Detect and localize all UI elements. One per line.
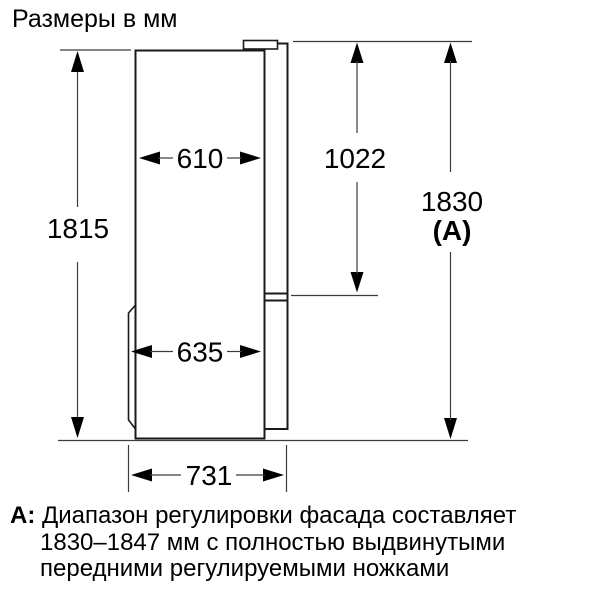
arrow-right-icon	[240, 345, 261, 358]
dim-total-depth: 731	[131, 460, 284, 491]
footnote: A: Диапазон регулировки фасада составляе…	[10, 503, 600, 583]
dim-label-635: 635	[177, 337, 224, 368]
dim-label-731: 731	[186, 460, 233, 491]
dimension-diagram-page: Размеры в мм 1815	[0, 0, 600, 600]
arrow-right-icon	[263, 469, 284, 482]
dim-label-610: 610	[177, 143, 224, 174]
footnote-line-1: Диапазон регулировки фасада составляет	[42, 503, 516, 529]
footnote-line-3: передними регулируемыми ножками	[40, 555, 449, 582]
dim-label-1815: 1815	[47, 213, 109, 244]
dim-cabinet-height: 1815	[47, 51, 109, 438]
footnote-line-2: 1830–1847 мм с полностью выдвинутыми	[40, 529, 505, 556]
arrow-up-icon	[351, 43, 364, 64]
dim-lower-depth: 635	[131, 337, 261, 368]
dim-cabinet-depth: 610	[139, 143, 261, 174]
arrow-up-icon	[444, 43, 457, 64]
arrow-up-icon	[71, 51, 84, 72]
fridge-cabinet-outline	[136, 51, 265, 439]
arrow-down-icon	[71, 417, 84, 438]
dim-upper-door-height: 1022	[324, 43, 386, 293]
dim-label-1022: 1022	[324, 143, 386, 174]
fridge-rear-bulge	[129, 305, 136, 429]
footnote-key: A:	[10, 503, 35, 529]
arrow-left-icon	[131, 469, 152, 482]
arrow-left-icon	[131, 345, 152, 358]
arrow-right-icon	[240, 152, 261, 165]
arrow-left-icon	[139, 152, 160, 165]
fridge-hinge-cover	[244, 41, 278, 50]
arrow-down-icon	[351, 272, 364, 293]
dim-label-1830: 1830	[421, 186, 483, 217]
dimension-diagram: 1815 610 1022 1830 (A)	[0, 0, 600, 497]
fridge-outline	[129, 41, 288, 439]
dim-label-a-key: (A)	[433, 215, 472, 246]
dim-total-height: 1830 (A)	[421, 43, 483, 440]
arrow-down-icon	[444, 418, 457, 439]
fridge-door-panel	[265, 44, 288, 430]
